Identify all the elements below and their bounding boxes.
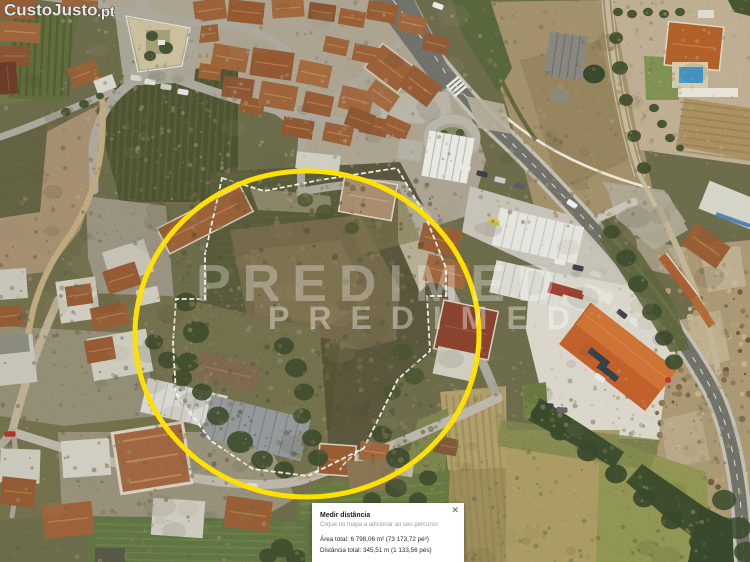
svg-text:.pt: .pt [97, 5, 115, 21]
svg-text:CustoJusto: CustoJusto [4, 1, 98, 20]
svg-text:PREDIMED: PREDIMED [268, 300, 589, 336]
